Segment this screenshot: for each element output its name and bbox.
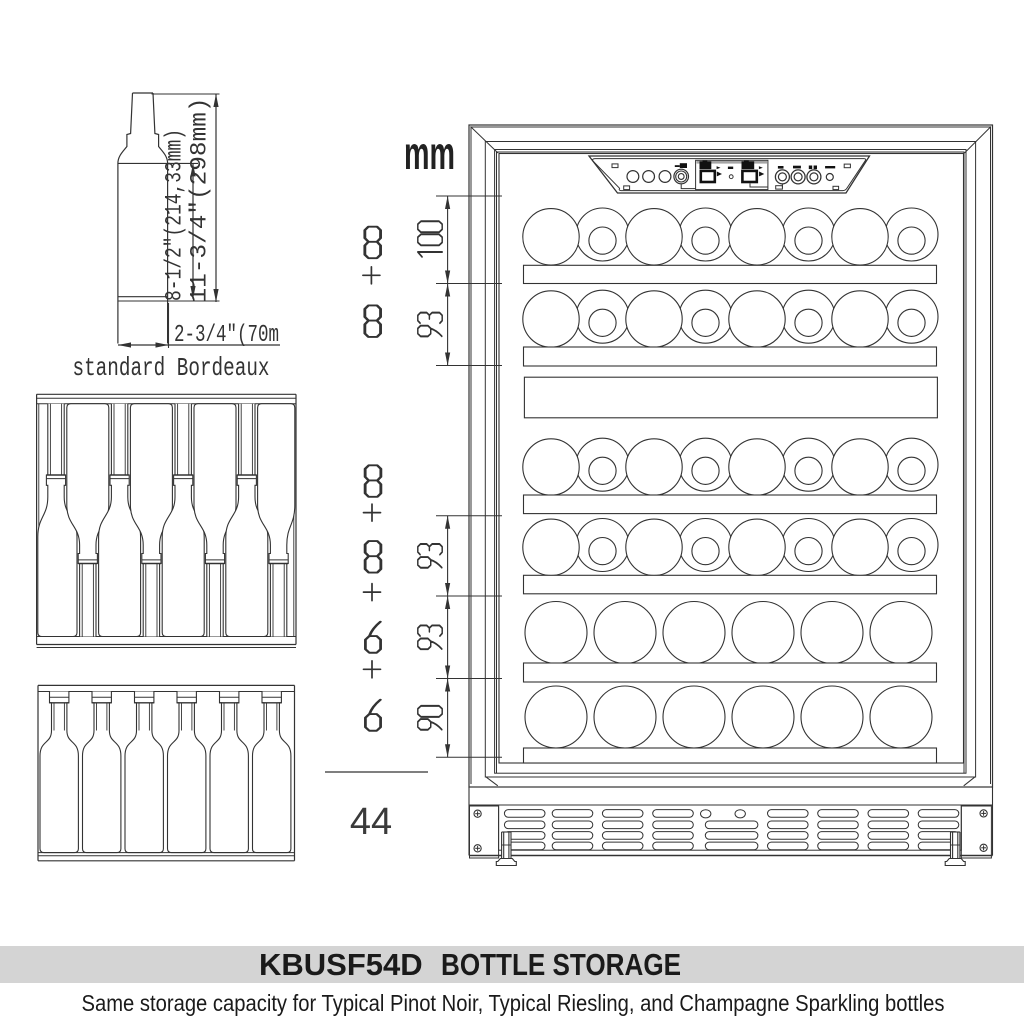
svg-text:standard Bordeaux: standard Bordeaux xyxy=(73,353,270,383)
svg-text:8-1/2″(214,33mm): 8-1/2″(214,33mm) xyxy=(162,129,188,301)
svg-text:KBUSF54D: KBUSF54D xyxy=(259,947,423,982)
svg-text:Same storage capacity for Typi: Same storage capacity for Typical Pinot … xyxy=(82,990,945,1016)
svg-text:BOTTLE STORAGE: BOTTLE STORAGE xyxy=(441,947,681,982)
svg-text:44: 44 xyxy=(350,801,392,843)
svg-text:mm: mm xyxy=(404,127,455,179)
svg-text:11-3/4″(298mm): 11-3/4″(298mm) xyxy=(187,98,213,303)
svg-text:2-3/4″(70m: 2-3/4″(70m xyxy=(174,322,279,349)
